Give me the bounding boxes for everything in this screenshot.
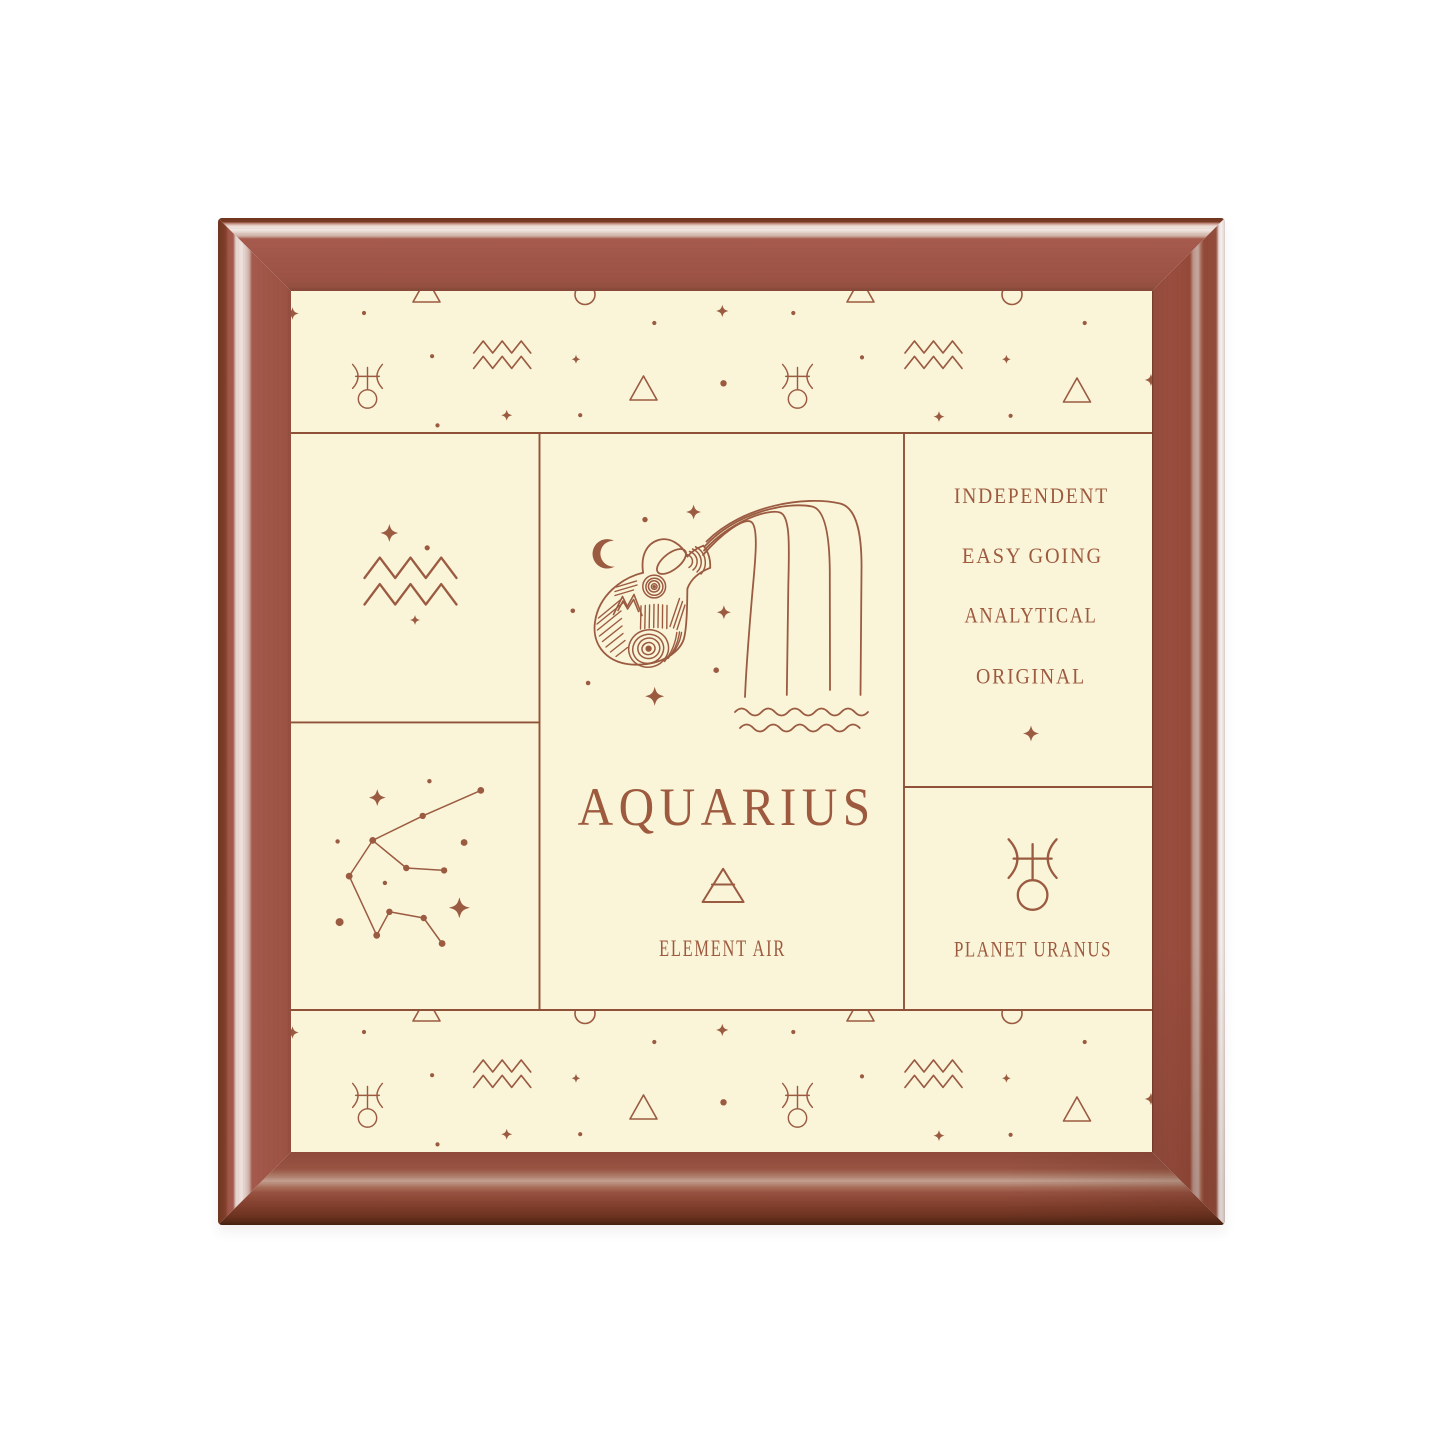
svg-text:ELEMENT AIR: ELEMENT AIR — [659, 936, 786, 962]
svg-text:EASY GOING: EASY GOING — [962, 543, 1103, 568]
svg-text:AQUARIUS: AQUARIUS — [578, 777, 876, 837]
svg-text:INDEPENDENT: INDEPENDENT — [954, 483, 1109, 508]
svg-text:PLANET URANUS: PLANET URANUS — [954, 936, 1112, 961]
svg-text:ANALYTICAL: ANALYTICAL — [965, 602, 1098, 627]
svg-text:ORIGINAL: ORIGINAL — [976, 663, 1086, 688]
